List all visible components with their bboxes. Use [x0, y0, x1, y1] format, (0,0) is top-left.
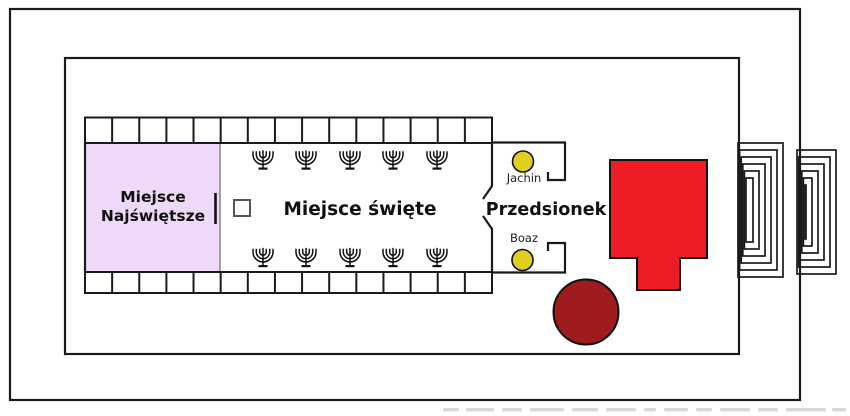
caption-fragment: [502, 408, 522, 412]
cropped-caption-remnant: [443, 408, 846, 412]
outer-court-east-gate: [797, 150, 836, 274]
menorah-icon: [296, 150, 316, 168]
caption-fragment: [644, 408, 656, 412]
caption-fragment: [530, 408, 564, 412]
gate-step: [805, 185, 806, 239]
pillar-boaz: [512, 250, 533, 271]
vestibule-label: Przedsionek: [486, 200, 607, 220]
caption-fragment: [786, 408, 826, 412]
menorah-icon: [340, 150, 360, 168]
top-chambers-outline: [85, 118, 492, 144]
floor-plan-canvas: Miejsce Najświętsze Miejsce święte Przed…: [0, 0, 850, 416]
menorah-icon: [340, 248, 360, 266]
caption-fragment: [758, 408, 778, 412]
side-chambers-bottom-row: [85, 272, 492, 293]
side-chambers-top-row: [85, 118, 492, 144]
caption-fragment: [443, 408, 459, 412]
holy-of-holies-label-line1: Miejsce: [120, 188, 186, 206]
caption-fragment: [832, 408, 846, 412]
jachin-label: Jachin: [506, 171, 542, 185]
menorah-icon: [427, 150, 447, 168]
holy-of-holies-label-line2: Najświętsze: [101, 207, 205, 225]
caption-fragment: [664, 408, 688, 412]
burnt-offering-altar: [610, 160, 707, 290]
menorah-icon: [427, 248, 447, 266]
caption-fragment: [720, 408, 750, 412]
caption-fragment: [606, 408, 636, 412]
temple-floor-plan: Miejsce Najświętsze Miejsce święte Przed…: [0, 0, 850, 416]
menorah-icon: [383, 248, 403, 266]
gate-step: [746, 178, 753, 242]
holy-place-label: Miejsce święte: [284, 199, 437, 220]
menorah-icon: [253, 150, 273, 168]
caption-fragment: [466, 408, 494, 412]
inner-court-east-gate: [738, 143, 783, 277]
menorah-icon: [253, 248, 273, 266]
molten-sea: [554, 280, 619, 345]
menorah-icon: [383, 150, 403, 168]
incense-altar-square: [234, 200, 250, 216]
caption-fragment: [572, 408, 598, 412]
caption-fragment: [696, 408, 712, 412]
bottom-chambers-outline: [85, 272, 492, 293]
boaz-label: Boaz: [510, 231, 538, 245]
menorah-icon: [296, 248, 316, 266]
pillar-jachin: [513, 151, 534, 172]
